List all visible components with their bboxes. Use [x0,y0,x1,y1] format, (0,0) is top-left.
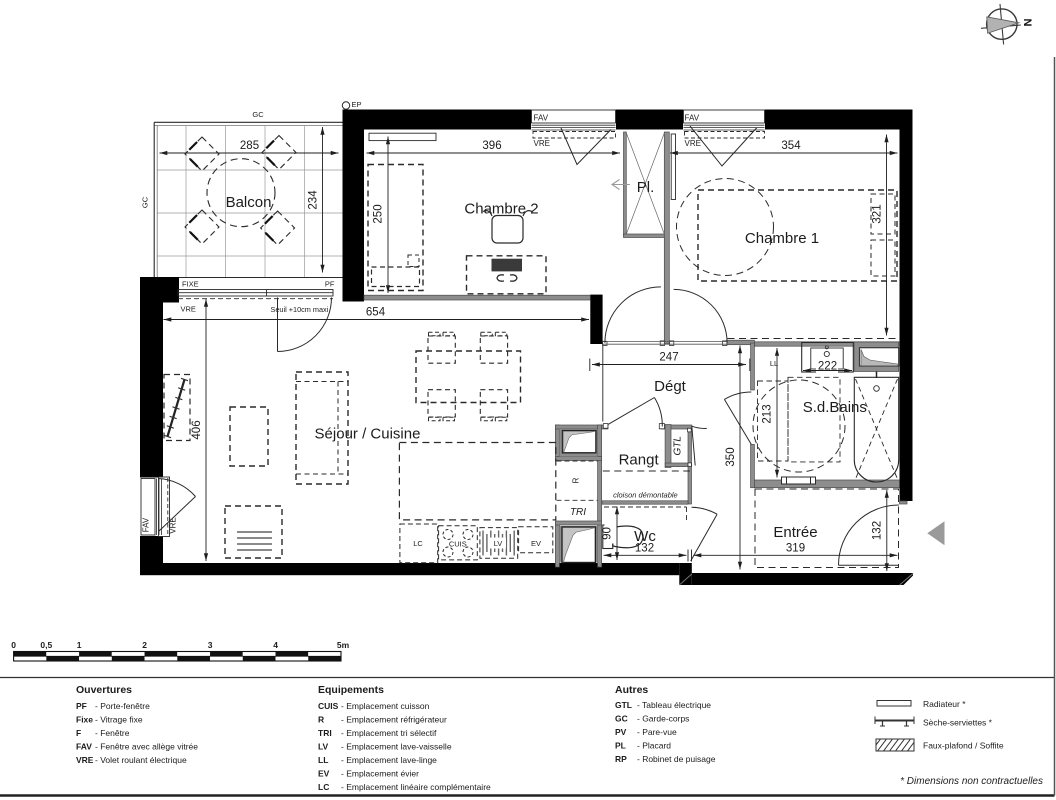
svg-text:222: 222 [818,361,837,373]
svg-text:- Placard: - Placard [637,741,671,751]
svg-text:VRE: VRE [181,305,196,314]
svg-text:PF: PF [325,280,335,289]
svg-text:Sèche-serviettes *: Sèche-serviettes * [923,718,993,728]
svg-text:- Emplacement cuisson: - Emplacement cuisson [341,701,430,711]
svg-text:PL: PL [615,741,626,751]
svg-text:CUIS: CUIS [449,540,467,549]
svg-text:5m: 5m [337,640,350,650]
svg-text:0,5: 0,5 [40,640,52,650]
svg-text:cloison démontable: cloison démontable [613,490,678,499]
svg-text:Pl.: Pl. [637,179,655,196]
svg-text:- Emplacement tri sélectif: - Emplacement tri sélectif [341,728,437,738]
svg-text:LL: LL [770,359,778,368]
svg-text:Faux-plafond / Soffite: Faux-plafond / Soffite [923,741,1004,751]
svg-text:EV: EV [531,539,541,548]
svg-text:FIXE: FIXE [182,280,199,289]
svg-text:- Pare-vue: - Pare-vue [637,727,677,737]
svg-text:GC: GC [141,196,150,208]
svg-text:S.d.Bains: S.d.Bains [803,399,867,416]
svg-text:CUIS: CUIS [318,701,339,711]
svg-text:F: F [76,728,81,738]
svg-text:Wc: Wc [634,528,656,545]
svg-text:132: 132 [871,521,883,540]
svg-text:* Dimensions non contractuelle: * Dimensions non contractuelles [900,776,1043,787]
svg-text:VRE: VRE [534,139,550,148]
svg-text:EP: EP [352,100,362,109]
svg-text:Equipements: Equipements [318,684,384,696]
svg-text:285: 285 [240,140,259,152]
svg-text:EV: EV [318,769,330,779]
svg-text:Radiateur *: Radiateur * [923,699,966,709]
svg-text:LC: LC [318,782,329,792]
svg-text:234: 234 [308,190,320,210]
svg-text:Seuil +10cm maxi: Seuil +10cm maxi [271,305,329,314]
svg-text:247: 247 [659,352,678,364]
svg-text:396: 396 [482,140,501,152]
svg-text:RP: RP [615,754,627,764]
svg-text:GTL: GTL [673,436,684,455]
svg-text:654: 654 [366,307,386,319]
svg-text:Dégt: Dégt [654,378,687,395]
svg-text:- Emplacement lave-vaisselle: - Emplacement lave-vaisselle [341,742,452,752]
svg-text:FAV: FAV [142,517,151,532]
svg-text:250: 250 [373,204,385,223]
svg-text:TRI: TRI [570,507,586,518]
svg-text:Chambre 2: Chambre 2 [464,201,538,218]
svg-text:- Robinet de puisage: - Robinet de puisage [637,754,716,764]
svg-text:FAV: FAV [685,114,700,123]
svg-text:213: 213 [762,404,774,423]
svg-text:4: 4 [273,640,278,650]
svg-text:1: 1 [77,640,82,650]
svg-text:Fixe: Fixe [76,715,93,725]
svg-text:2: 2 [142,640,147,650]
svg-text:Ouvertures: Ouvertures [76,684,132,696]
svg-text:VRE: VRE [168,517,177,533]
svg-text:90: 90 [602,527,614,540]
svg-text:350: 350 [725,447,737,466]
svg-text:Chambre 1: Chambre 1 [745,230,819,247]
svg-text:GTL: GTL [615,700,632,710]
svg-text:- Fenêtre: - Fenêtre [95,728,130,738]
svg-text:406: 406 [191,420,203,439]
svg-text:R: R [318,715,324,725]
svg-text:- Tableau électrique: - Tableau électrique [637,700,711,710]
svg-text:LV: LV [494,539,503,548]
svg-text:- Vitrage fixe: - Vitrage fixe [95,715,143,725]
svg-text:LL: LL [318,755,328,765]
svg-text:Rangt: Rangt [619,452,660,469]
svg-text:Séjour / Cuisine: Séjour / Cuisine [315,426,421,443]
svg-text:- Fenêtre avec allège vitrée: - Fenêtre avec allège vitrée [95,742,198,752]
svg-text:- Volet roulant électrique: - Volet roulant électrique [95,755,187,765]
svg-text:- Emplacement lave-linge: - Emplacement lave-linge [341,755,437,765]
svg-text:TRI: TRI [318,728,332,738]
svg-text:- Emplacement réfrigérateur: - Emplacement réfrigérateur [341,715,447,725]
svg-text:GC: GC [252,110,264,119]
svg-text:- Emplacement évier: - Emplacement évier [341,769,419,779]
svg-text:321: 321 [872,204,884,223]
svg-text:N: N [1021,19,1033,27]
svg-text:GC: GC [615,714,628,724]
svg-text:- Emplacement linéaire complém: - Emplacement linéaire complémentaire [341,782,491,792]
svg-text:R: R [572,477,581,483]
svg-text:354: 354 [781,140,801,152]
svg-text:0: 0 [11,640,16,650]
svg-text:- Porte-fenêtre: - Porte-fenêtre [95,701,150,711]
svg-text:Entrée: Entrée [773,524,817,541]
svg-text:FAV: FAV [534,114,549,123]
svg-text:3: 3 [208,640,213,650]
svg-text:Autres: Autres [615,684,648,696]
svg-text:PV: PV [615,727,627,737]
svg-text:- Garde-corps: - Garde-corps [637,714,689,724]
svg-text:LC: LC [413,539,423,548]
svg-text:FAV: FAV [76,742,92,752]
svg-text:VRE: VRE [76,755,94,765]
svg-text:LV: LV [318,742,329,752]
svg-text:319: 319 [786,543,805,555]
svg-text:Balcon: Balcon [226,194,272,211]
svg-text:PF: PF [76,701,87,711]
svg-text:VRE: VRE [685,139,701,148]
